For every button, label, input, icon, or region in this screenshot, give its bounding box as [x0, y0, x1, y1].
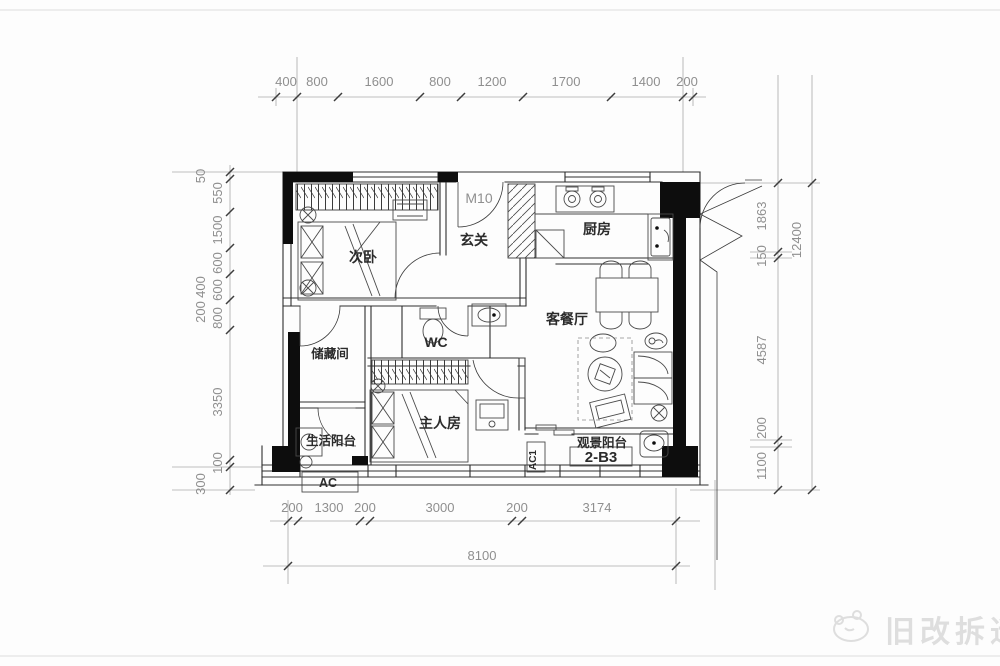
dim-bottom-200c: 200 — [506, 500, 528, 515]
dim-left-200: 200 — [193, 301, 208, 323]
floorplan-drawing: 400 800 1600 800 1200 1700 1400 200 50 5… — [0, 0, 1000, 666]
dim-bottom-total-8100: 8100 — [468, 548, 497, 563]
wardrobe-master — [372, 360, 468, 384]
dimension-chain-top: 400 800 1600 800 1200 1700 1400 200 — [258, 57, 706, 172]
floorplan-page: 400 800 1600 800 1200 1700 1400 200 50 5… — [0, 0, 1000, 666]
watermark-text: 旧改拆迁 — [885, 616, 1000, 649]
dim-bottom-200b: 200 — [354, 500, 376, 515]
label-ac: AC — [319, 476, 337, 490]
dim-top-400: 400 — [275, 74, 297, 89]
dim-right-total-12400: 12400 — [789, 222, 804, 258]
dim-left-800: 800 — [210, 307, 225, 329]
label-living-dining: 客餐厅 — [545, 311, 588, 327]
label-ac1: AC1 — [528, 450, 539, 470]
room-labels: 次卧 M10 玄关 厨房 客餐厅 储藏间 WC 主人房 生活阳台 观景阳台 2-… — [306, 190, 627, 490]
label-unit-2-b3: 2-B3 — [585, 449, 618, 466]
dresser — [476, 400, 508, 430]
wardrobe-secondary — [296, 184, 438, 210]
dim-left-600b: 600 — [210, 279, 225, 301]
dim-bottom-1300: 1300 — [315, 500, 344, 515]
dim-left-600a: 600 — [210, 252, 225, 274]
dim-top-1400: 1400 — [632, 74, 661, 89]
dim-top-800a: 800 — [306, 74, 328, 89]
label-view-balcony: 观景阳台 — [577, 435, 627, 450]
dim-bottom-3174: 3174 — [583, 500, 612, 515]
washbasin — [472, 304, 506, 326]
dim-left-550: 550 — [210, 182, 225, 204]
dim-left-50: 50 — [193, 169, 208, 183]
dim-left-1500: 1500 — [210, 216, 225, 245]
dim-top-800b: 800 — [429, 74, 451, 89]
label-storage: 储藏间 — [310, 346, 349, 361]
living-room-furniture — [578, 333, 672, 428]
dim-left-300: 300 — [193, 473, 208, 495]
label-kitchen: 厨房 — [583, 221, 611, 237]
dim-left-400: 400 — [193, 276, 208, 298]
dimension-chain-bottom: 200 1300 200 3000 200 3174 8100 — [263, 480, 715, 590]
dim-top-1200: 1200 — [478, 74, 507, 89]
label-entry-door-m10: M10 — [465, 190, 492, 206]
photo-edge-lines — [0, 10, 1000, 656]
dim-left-100: 100 — [210, 452, 225, 474]
dim-top-200: 200 — [676, 74, 698, 89]
watermark-logo-icon — [834, 611, 868, 641]
label-life-balcony: 生活阳台 — [306, 433, 356, 448]
label-entry-hall: 玄关 — [460, 232, 488, 248]
watermark: 旧改拆迁 — [834, 611, 1000, 649]
dim-bottom-3000: 3000 — [426, 500, 455, 515]
wall-symbol — [300, 456, 312, 468]
dim-right-1863: 1863 — [754, 202, 769, 231]
label-master-bedroom: 主人房 — [419, 415, 461, 431]
dim-right-200: 200 — [754, 417, 769, 439]
label-wc: WC — [424, 334, 447, 350]
dim-top-1600: 1600 — [365, 74, 394, 89]
dim-right-150: 150 — [754, 245, 769, 267]
bed-secondary — [298, 222, 396, 300]
dim-top-1700: 1700 — [552, 74, 581, 89]
label-secondary-bedroom: 次卧 — [349, 249, 377, 265]
dining-table — [596, 261, 658, 329]
shoe-cabinet — [508, 184, 535, 258]
dim-left-3350: 3350 — [210, 388, 225, 417]
dim-right-4587: 4587 — [754, 336, 769, 365]
dim-right-1100: 1100 — [754, 452, 769, 480]
dimension-chain-left: 50 550 1500 600 400 600 200 800 3350 100… — [172, 165, 283, 495]
dimension-chain-right: 1863 150 4587 200 1100 12400 — [690, 75, 820, 494]
dim-bottom-200a: 200 — [281, 500, 303, 515]
